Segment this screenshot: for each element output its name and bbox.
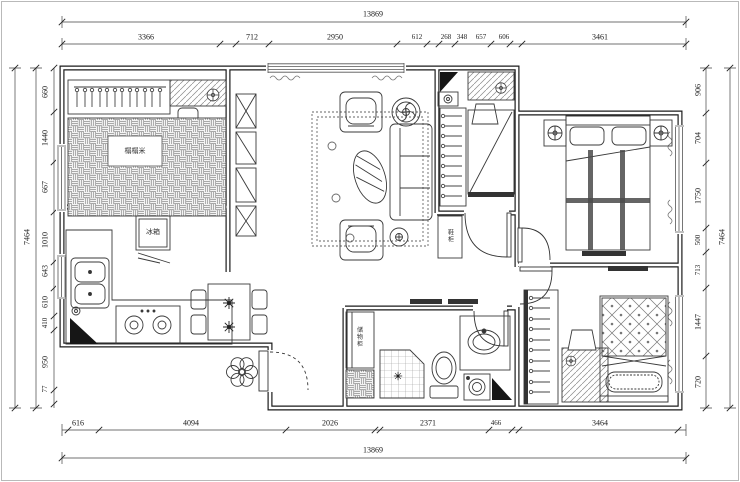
master-bed xyxy=(566,116,650,250)
washing-machine xyxy=(464,374,490,400)
coffee-table xyxy=(347,147,392,208)
doors xyxy=(177,172,552,391)
dim-left-2: 1440 xyxy=(41,130,50,146)
fridge xyxy=(136,216,170,263)
dim-right-5: 713 xyxy=(694,265,702,276)
fan xyxy=(392,98,420,126)
hall-cabinet-label: 鞋柜 xyxy=(446,229,455,243)
dim-bottom-1: 616 xyxy=(72,419,84,428)
kitchen-cooktop xyxy=(116,306,180,344)
toilet xyxy=(430,352,458,398)
dim-top-6: 348 xyxy=(457,33,468,41)
bedroom2-wall-tv xyxy=(608,266,648,271)
bath-corner-unit xyxy=(492,378,512,400)
dim-right-2: 704 xyxy=(694,132,703,144)
kitchen-sink xyxy=(71,258,109,308)
bedroom1-lamp-icon xyxy=(207,89,219,101)
bedroom2-desk xyxy=(562,348,608,402)
dim-top-2: 712 xyxy=(246,33,258,42)
bath-cabinet-label: 储物柜 xyxy=(355,327,364,348)
dim-bottom-5: 466 xyxy=(491,419,502,427)
study-corner-unit xyxy=(440,72,458,92)
study-desk xyxy=(468,72,514,100)
kitchen-corner-unit xyxy=(70,318,98,344)
floorplan-canvas: 13869 3366 712 2950 612 268 348 657 606 … xyxy=(0,0,740,482)
armchair-bottom xyxy=(340,220,383,260)
study-bed xyxy=(468,110,514,197)
study-wardrobe xyxy=(440,108,466,206)
bedroom2-wardrobe xyxy=(524,290,558,404)
bath-cabinet xyxy=(346,312,374,398)
table-plant-icon xyxy=(223,297,235,309)
dim-bottom-4: 2371 xyxy=(420,419,436,428)
bedside-lamp-icon xyxy=(548,126,562,140)
dim-top-total: 13869 xyxy=(363,10,383,19)
bedroom1-wardrobe xyxy=(68,80,170,114)
dim-right-3: 1750 xyxy=(694,188,703,204)
window-bedroom1-left xyxy=(57,146,66,210)
dim-left-total: 7464 xyxy=(23,229,32,245)
door-study xyxy=(465,213,511,257)
dim-right-4: 500 xyxy=(694,235,702,246)
master-wall-tv xyxy=(582,251,626,256)
dim-left-6: 610 xyxy=(41,296,50,308)
dim-right-total: 7464 xyxy=(718,229,727,245)
dim-left-9: 77 xyxy=(41,386,49,393)
dim-bottom-3: 2026 xyxy=(322,419,338,428)
entry-plant xyxy=(227,358,258,387)
dim-left-4: 1010 xyxy=(41,232,50,248)
bedroom2-lamp-icon xyxy=(566,356,576,366)
dim-top-1: 3366 xyxy=(138,33,154,42)
door-master xyxy=(518,228,550,262)
bath-shelf-bar xyxy=(448,299,478,304)
tatami-bed-label: 榻榻米 xyxy=(125,146,146,156)
dim-right-7: 720 xyxy=(694,376,703,388)
dim-bottom-total: 13869 xyxy=(363,446,383,455)
fridge-label: 冰箱 xyxy=(146,227,160,237)
dim-top-3: 2950 xyxy=(327,33,343,42)
dim-top-4: 612 xyxy=(412,33,423,41)
bedroom2-bed xyxy=(600,296,668,402)
dim-left-5: 643 xyxy=(41,265,50,277)
table-plant-icon xyxy=(223,321,235,333)
dim-bottom-2: 4094 xyxy=(183,419,199,428)
dim-top-7: 657 xyxy=(476,33,487,41)
dim-left-8: 950 xyxy=(41,356,50,368)
study-cabinet-box xyxy=(438,92,458,106)
dim-left-7: 410 xyxy=(41,318,49,329)
side-table xyxy=(390,228,408,246)
door-entry xyxy=(259,351,308,391)
shelf-column xyxy=(236,94,256,236)
vanity-sink xyxy=(460,316,510,370)
dim-bottom-6: 3464 xyxy=(592,419,608,428)
dim-top-9: 3461 xyxy=(592,33,608,42)
dim-right-6: 1447 xyxy=(694,314,703,330)
shower xyxy=(380,350,424,398)
dim-right-1: 906 xyxy=(694,84,703,96)
bedside-lamp-icon xyxy=(654,126,668,140)
dim-left-1: 660 xyxy=(41,86,50,98)
dim-top-5: 268 xyxy=(441,33,452,41)
tatami-platform-bed xyxy=(68,118,226,216)
study-lamp-icon xyxy=(496,83,507,94)
dim-left-3: 667 xyxy=(41,181,50,193)
study-stool xyxy=(472,104,498,124)
floorplan-drawing xyxy=(0,0,740,482)
dim-top-8: 606 xyxy=(499,33,510,41)
window-kitchen-left xyxy=(57,256,66,298)
bath-shelf-bar xyxy=(410,299,442,304)
sofa xyxy=(390,124,432,220)
bedroom2-chair xyxy=(568,330,596,350)
